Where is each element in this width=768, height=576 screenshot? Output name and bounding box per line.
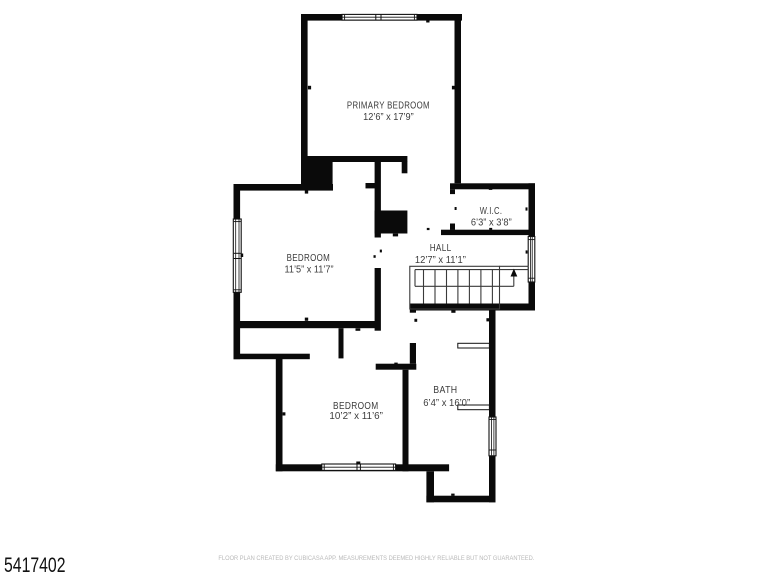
svg-text:W.I.C.: W.I.C. — [480, 206, 503, 217]
svg-text:12’7” x 11’1”: 12’7” x 11’1” — [415, 255, 466, 266]
svg-text:FLOOR PLAN CREATED BY CUBICASA: FLOOR PLAN CREATED BY CUBICASA APP. MEAS… — [218, 555, 534, 562]
svg-text:PRIMARY BEDROOM: PRIMARY BEDROOM — [347, 101, 430, 112]
svg-text:6’4” x 16’0”: 6’4” x 16’0” — [423, 398, 470, 409]
svg-text:5417402: 5417402 — [4, 554, 66, 576]
svg-text:6’3” x 3’8”: 6’3” x 3’8” — [471, 218, 512, 229]
svg-text:BATH: BATH — [433, 385, 457, 396]
svg-text:10’2” x 11’6”: 10’2” x 11’6” — [329, 411, 383, 422]
svg-text:BEDROOM: BEDROOM — [287, 253, 331, 264]
svg-text:HALL: HALL — [430, 243, 452, 254]
svg-text:11’5” x 11’7”: 11’5” x 11’7” — [285, 265, 334, 276]
svg-text:12’6” x 17’9”: 12’6” x 17’9” — [363, 112, 414, 123]
